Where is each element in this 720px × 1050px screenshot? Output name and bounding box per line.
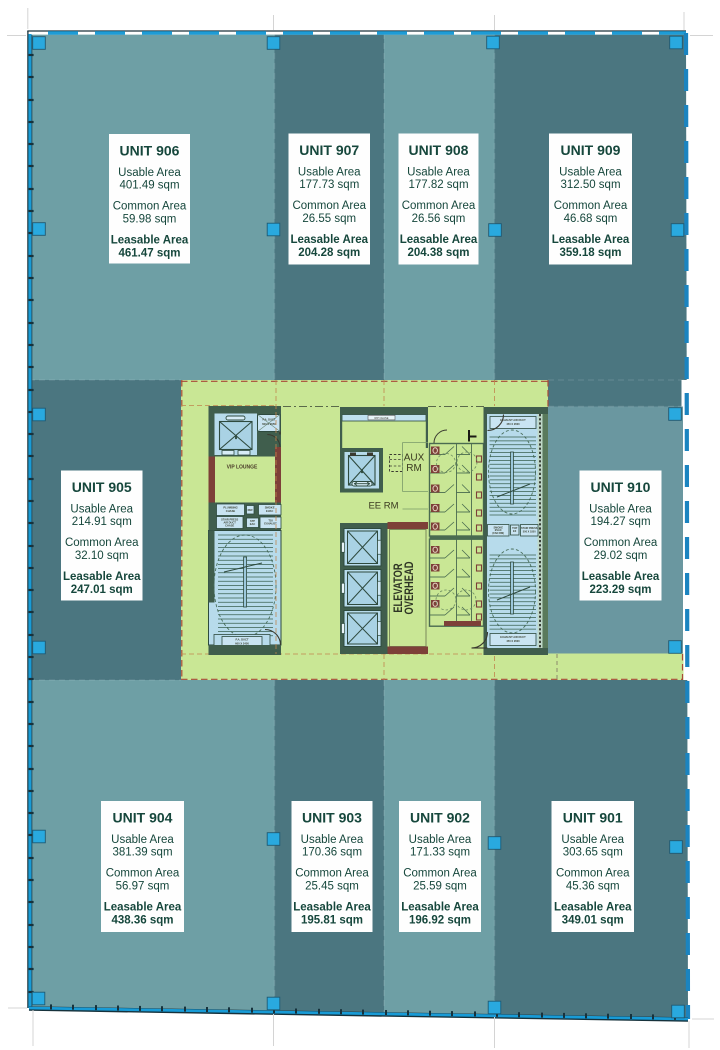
svg-text:Common Area: Common Area <box>292 200 366 212</box>
svg-text:Usable Area: Usable Area <box>118 167 181 179</box>
svg-text:▮: ▮ <box>361 469 364 475</box>
svg-text:UNIT 906: UNIT 906 <box>120 142 180 158</box>
svg-text:▮: ▮ <box>235 435 238 441</box>
svg-text:29.02 sqm: 29.02 sqm <box>594 550 648 562</box>
svg-text:170.36 sqm: 170.36 sqm <box>302 847 362 859</box>
svg-text:196.92 sqm: 196.92 sqm <box>409 914 471 926</box>
svg-text:Common Area: Common Area <box>113 200 187 212</box>
svg-text:EAC: EAC <box>250 522 256 526</box>
svg-text:EXHAUST: EXHAUST <box>264 522 277 526</box>
svg-text:194.27 sqm: 194.27 sqm <box>590 516 650 528</box>
svg-text:Leasable Area: Leasable Area <box>104 901 182 913</box>
svg-text:214.91 sqm: 214.91 sqm <box>72 516 132 528</box>
svg-text:Usable Area: Usable Area <box>111 834 174 846</box>
svg-text:Common Area: Common Area <box>584 537 658 549</box>
svg-text:177.73 sqm: 177.73 sqm <box>299 179 359 191</box>
svg-text:195.81 sqm: 195.81 sqm <box>301 914 363 926</box>
svg-text:Leasable Area: Leasable Area <box>582 571 660 583</box>
svg-text:UNIT 905: UNIT 905 <box>72 479 132 495</box>
svg-text:OVERHEAD: OVERHEAD <box>403 561 416 614</box>
svg-text:EE RM: EE RM <box>368 501 398 512</box>
svg-text:247.01 sqm: 247.01 sqm <box>71 584 133 596</box>
svg-text:Common Area: Common Area <box>295 867 369 879</box>
svg-text:UNIT 902: UNIT 902 <box>410 809 470 825</box>
svg-text:45.36 sqm: 45.36 sqm <box>566 880 620 892</box>
svg-text:450 X 2600: 450 X 2600 <box>506 422 520 426</box>
svg-text:CHASE: CHASE <box>225 524 234 528</box>
svg-text:Usable Area: Usable Area <box>559 166 622 178</box>
svg-text:204.38 sqm: 204.38 sqm <box>407 247 469 259</box>
svg-text:Leasable Area: Leasable Area <box>401 901 479 913</box>
svg-text:REF: REF <box>248 508 254 512</box>
svg-text:59.98 sqm: 59.98 sqm <box>123 213 177 225</box>
svg-text:EXHAUST AIR DUCT: EXHAUST AIR DUCT <box>500 635 526 639</box>
svg-text:Common Area: Common Area <box>403 867 477 879</box>
svg-text:AUX: AUX <box>404 453 425 464</box>
svg-text:UNIT 909: UNIT 909 <box>561 142 621 158</box>
svg-text:500 X 1850: 500 X 1850 <box>523 530 536 533</box>
svg-text:46.68 sqm: 46.68 sqm <box>564 213 618 225</box>
svg-text:600 X 2050: 600 X 2050 <box>262 422 276 426</box>
svg-text:171.33 sqm: 171.33 sqm <box>410 847 470 859</box>
svg-text:UNIT 910: UNIT 910 <box>591 479 651 495</box>
svg-text:204.28 sqm: 204.28 sqm <box>298 247 360 259</box>
svg-text:26.56 sqm: 26.56 sqm <box>412 213 466 225</box>
svg-text:Common Area: Common Area <box>556 867 630 879</box>
svg-text:UNIT 903: UNIT 903 <box>302 809 362 825</box>
svg-text:381.39 sqm: 381.39 sqm <box>112 847 172 859</box>
svg-text:56.97 sqm: 56.97 sqm <box>116 880 170 892</box>
svg-text:Usable Area: Usable Area <box>409 834 472 846</box>
svg-text:303.65 sqm: 303.65 sqm <box>563 847 623 859</box>
svg-text:PLUMBING: PLUMBING <box>223 506 237 510</box>
svg-text:450 X 2600: 450 X 2600 <box>506 639 520 643</box>
svg-text:Usable Area: Usable Area <box>589 503 652 515</box>
svg-text:(FAN RM): (FAN RM) <box>492 531 504 535</box>
svg-text:438.36 sqm: 438.36 sqm <box>111 914 173 926</box>
svg-text:VIP LOUNGE: VIP LOUNGE <box>227 465 258 471</box>
svg-text:Leasable Area: Leasable Area <box>111 234 189 246</box>
svg-text:Common Area: Common Area <box>402 200 476 212</box>
svg-text:RM: RM <box>406 463 422 474</box>
svg-text:Leasable Area: Leasable Area <box>554 901 632 913</box>
svg-text:401.49 sqm: 401.49 sqm <box>119 180 179 192</box>
svg-text:UNIT 908: UNIT 908 <box>409 142 469 158</box>
svg-text:Common Area: Common Area <box>554 200 628 212</box>
svg-text:25.45 sqm: 25.45 sqm <box>305 880 359 892</box>
svg-text:177.82 sqm: 177.82 sqm <box>408 179 468 191</box>
svg-text:Common Area: Common Area <box>106 867 180 879</box>
svg-text:SMOKE: SMOKE <box>265 506 275 510</box>
svg-text:UNIT 907: UNIT 907 <box>299 142 359 158</box>
svg-text:25.59 sqm: 25.59 sqm <box>413 880 467 892</box>
svg-text:Leasable Area: Leasable Area <box>290 234 368 246</box>
svg-text:P.A. DUCT: P.A. DUCT <box>235 638 248 642</box>
svg-text:Usable Area: Usable Area <box>70 503 133 515</box>
svg-text:UNIT 904: UNIT 904 <box>113 809 173 825</box>
svg-text:26.55 sqm: 26.55 sqm <box>302 213 356 225</box>
svg-text:32.10 sqm: 32.10 sqm <box>75 550 129 562</box>
svg-text:P.A. DUCT: P.A. DUCT <box>262 418 275 422</box>
svg-text:600 X 2450: 600 X 2450 <box>235 641 249 645</box>
svg-text:CHASE: CHASE <box>226 509 236 513</box>
svg-text:Usable Area: Usable Area <box>298 166 361 178</box>
svg-text:Leasable Area: Leasable Area <box>293 901 371 913</box>
svg-text:EXHAUST AIR DUCT: EXHAUST AIR DUCT <box>500 418 526 422</box>
svg-text:461.47 sqm: 461.47 sqm <box>118 247 180 259</box>
svg-text:RIP CHASE: RIP CHASE <box>375 416 389 420</box>
svg-text:Leasable Area: Leasable Area <box>400 234 478 246</box>
svg-text:312.50 sqm: 312.50 sqm <box>560 179 620 191</box>
svg-text:359.18 sqm: 359.18 sqm <box>559 247 621 259</box>
svg-text:349.01 sqm: 349.01 sqm <box>562 914 624 926</box>
svg-text:Usable Area: Usable Area <box>407 166 470 178</box>
svg-text:Leasable Area: Leasable Area <box>552 234 630 246</box>
svg-text:Usable Area: Usable Area <box>301 834 364 846</box>
svg-text:Leasable Area: Leasable Area <box>63 571 141 583</box>
svg-text:UNIT 901: UNIT 901 <box>563 809 623 825</box>
svg-text:Common Area: Common Area <box>65 537 139 549</box>
svg-text:Usable Area: Usable Area <box>561 834 624 846</box>
svg-text:EX: EX <box>513 530 517 533</box>
svg-text:EVAC: EVAC <box>266 509 273 513</box>
svg-text:223.29 sqm: 223.29 sqm <box>589 584 651 596</box>
